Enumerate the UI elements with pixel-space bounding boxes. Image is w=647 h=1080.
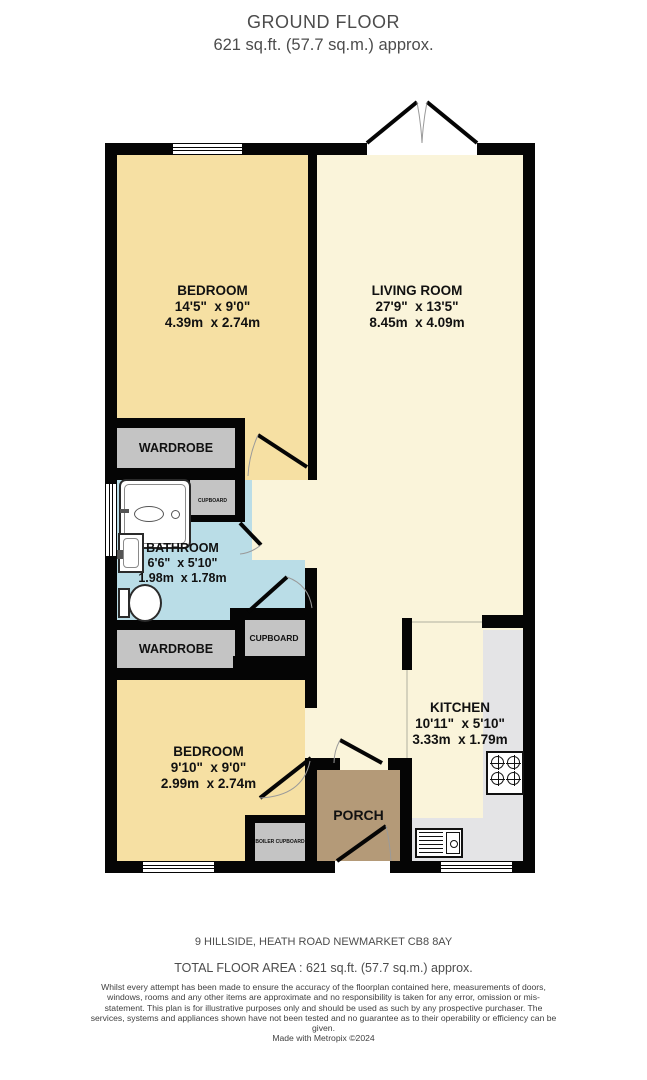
property-address: 9 HILLSIDE, HEATH ROAD NEWMARKET CB8 8AY [0, 936, 647, 948]
bathroom-label: BATHROOM 6'6" x 5'10" 1.98m x 1.78m [100, 541, 265, 586]
wardrobe1-label: WARDROBE [117, 428, 235, 468]
living-room-label: LIVING ROOM 27'9" x 13'5" 8.45m x 4.09m [317, 283, 517, 331]
disclaimer: Whilst every attempt has been made to en… [0, 982, 647, 1044]
disclaimer-text: Whilst every attempt has been made to en… [89, 982, 559, 1033]
door-bedroom1 [248, 435, 307, 476]
french-doors-living-room [367, 102, 477, 143]
plan-header: GROUND FLOOR 621 sq.ft. (57.7 sq.m.) app… [0, 12, 647, 55]
total-floor-area: TOTAL FLOOR AREA : 621 sq.ft. (57.7 sq.m… [0, 961, 647, 975]
cupboard1-label: CUPBOARD [190, 480, 235, 522]
page-subtitle: 621 sq.ft. (57.7 sq.m.) approx. [0, 36, 647, 55]
door-porch-entrance [337, 826, 391, 861]
kitchen-label: KITCHEN 10'11" x 5'10" 3.33m x 1.79m [385, 700, 535, 748]
metropix-credit: Made with Metropix ©2024 [89, 1033, 559, 1043]
bedroom1-label: BEDROOM 14'5" x 9'0" 4.39m x 2.74m [117, 283, 308, 331]
boiler-cupboard-label: BOILER CUPBOARD [255, 823, 305, 861]
porch-label: PORCH [317, 803, 400, 827]
page-title: GROUND FLOOR [0, 12, 647, 33]
bedroom2-label: BEDROOM 9'10" x 9'0" 2.99m x 2.74m [117, 744, 300, 792]
floorplan: BEDROOM 14'5" x 9'0" 4.39m x 2.74m LIVIN… [105, 143, 535, 873]
wardrobe2-label: WARDROBE [117, 630, 235, 668]
door-porch-inner [334, 740, 382, 763]
cupboard2-label: CUPBOARD [243, 620, 305, 656]
